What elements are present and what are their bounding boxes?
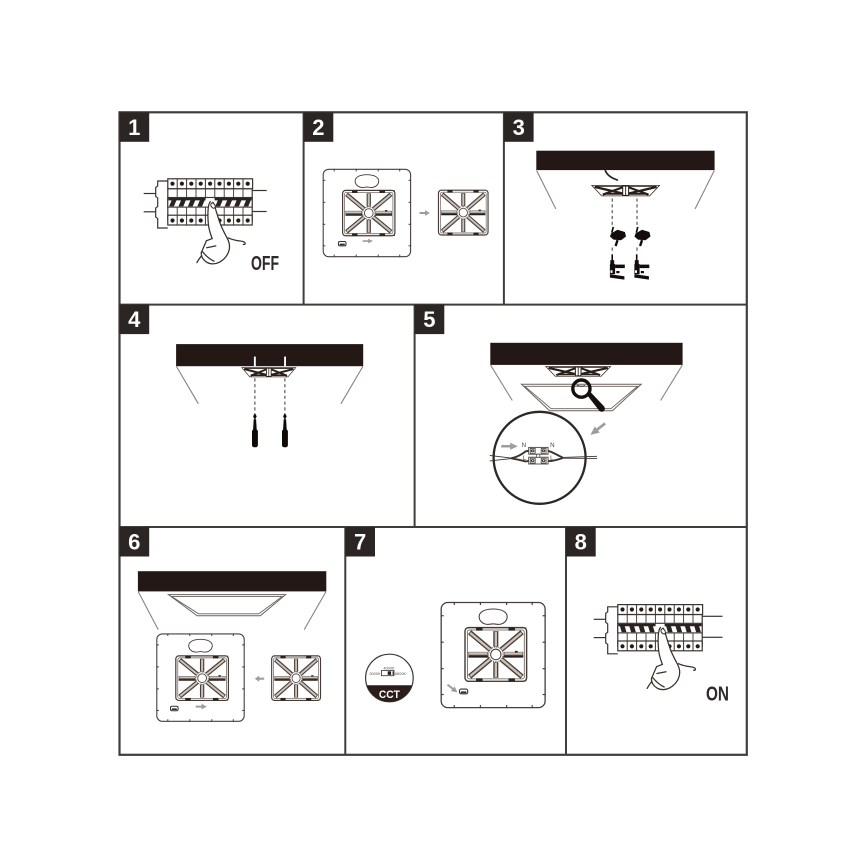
svg-text:3000K: 3000K (369, 671, 381, 676)
svg-text:N: N (522, 442, 526, 449)
svg-text:2: 2 (312, 115, 324, 140)
svg-text:OFF: OFF (251, 252, 279, 275)
svg-text:L: L (523, 455, 527, 462)
svg-text:ON: ON (706, 683, 729, 706)
svg-text:7: 7 (354, 530, 366, 555)
svg-text:1: 1 (128, 115, 140, 140)
svg-text:3: 3 (513, 115, 525, 140)
svg-text:4: 4 (128, 307, 141, 332)
svg-text:N: N (550, 442, 554, 449)
svg-text:6500K: 6500K (395, 671, 407, 676)
svg-text:8: 8 (575, 530, 587, 555)
svg-text:4000K: 4000K (383, 665, 395, 670)
svg-text:CCT: CCT (379, 689, 401, 701)
svg-text:5: 5 (423, 307, 435, 332)
svg-text:L: L (550, 455, 554, 462)
svg-text:6: 6 (128, 530, 140, 555)
